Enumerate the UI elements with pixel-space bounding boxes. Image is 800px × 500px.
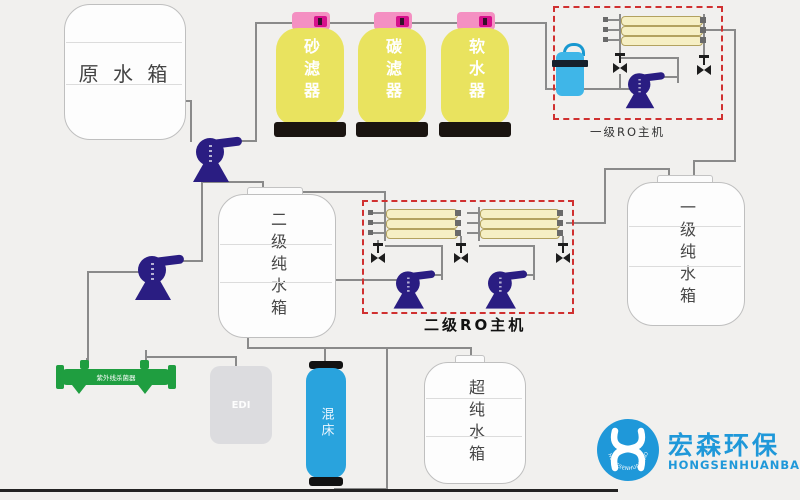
stage1-pure-water-tank-label: 一级纯水箱 <box>678 199 694 309</box>
valve-icon <box>613 62 627 74</box>
filter-valve-knob <box>314 16 327 27</box>
membrane-stub <box>608 29 619 31</box>
pipe-connector <box>700 27 706 33</box>
membrane-stub <box>373 232 384 234</box>
filter-valve-knob <box>396 16 409 27</box>
uv-leg <box>72 385 86 394</box>
pipe-connector <box>368 220 373 225</box>
mixed-bed-bottom-cap <box>309 477 343 486</box>
ro-stage2-label: 二级RO主机 <box>424 314 526 335</box>
uv-sterilizer: 紫外线杀菌器 <box>60 369 172 385</box>
pipe-connector <box>603 27 608 32</box>
filter-base <box>439 122 511 137</box>
pipe-segment <box>545 22 547 90</box>
tank-seam <box>426 436 522 437</box>
filter-base <box>356 122 428 137</box>
pipe-connector <box>557 210 563 216</box>
membrane-stub <box>608 39 619 41</box>
membrane-stub <box>467 212 478 214</box>
filter-valve-knob <box>479 16 492 27</box>
stage2-pure-water-tank-label: 二级纯水箱 <box>269 211 285 321</box>
tank-seam <box>629 226 741 227</box>
pipe-segment <box>190 100 192 142</box>
ro-membrane-tube <box>386 219 458 229</box>
pipe-connector <box>368 230 373 235</box>
pipe-segment <box>145 350 147 360</box>
ultra-pure-water-tank: 超纯水箱 <box>424 362 526 484</box>
membrane-stub <box>373 222 384 224</box>
membrane-stub <box>467 232 478 234</box>
pipe-connector <box>603 17 608 22</box>
valve-icon <box>697 64 711 76</box>
pipe-segment <box>88 271 142 273</box>
ro-membrane-tube <box>386 209 458 219</box>
membrane-stub <box>467 222 478 224</box>
ultra-pure-water-tank-label: 超纯水箱 <box>467 379 483 467</box>
transfer-pump <box>138 252 172 300</box>
tank-seam <box>66 42 182 43</box>
sand-filter-label: 砂滤器 <box>302 38 318 104</box>
precision-filter <box>556 52 584 96</box>
pipe-connector <box>557 230 563 236</box>
pipe-segment <box>694 160 736 162</box>
pipe-segment <box>201 181 203 262</box>
ro-membrane-tube <box>621 16 703 26</box>
carbon-filter-label: 碳滤器 <box>384 38 400 104</box>
pipe-connector <box>557 220 563 226</box>
uv-port <box>80 360 89 369</box>
tank-seam <box>629 266 741 267</box>
pipe-segment <box>145 356 236 358</box>
pipe-segment <box>386 347 388 490</box>
raw-water-tank: 原 水 箱 <box>64 4 186 140</box>
mixed-bed-label: 混床 <box>317 407 336 439</box>
tank-seam <box>426 398 522 399</box>
pipe-segment <box>247 347 472 349</box>
bottom-edge-line <box>0 489 618 492</box>
filter-base <box>274 122 346 137</box>
edi-label: EDI <box>232 400 251 411</box>
ro-membrane-tube <box>386 229 458 239</box>
precision-filter-band <box>552 60 588 67</box>
softener-label: 软水器 <box>467 38 483 104</box>
logo-chinese-text: 宏森环保 <box>668 426 780 462</box>
pipe-segment <box>604 168 670 170</box>
valve-icon <box>454 252 468 264</box>
ro-stage1-label: 一级RO主机 <box>590 124 665 140</box>
membrane-stub <box>373 212 384 214</box>
membrane-stub <box>608 19 619 21</box>
process-flow-diagram: 一级RO主机 二级RO主机 原 水 箱 二级纯水箱 <box>0 0 800 500</box>
uv-sterilizer-label: 紫外线杀菌器 <box>97 372 136 382</box>
high-pressure-pump <box>628 70 655 108</box>
ro-membrane-tube <box>621 36 703 46</box>
pipe-connector <box>368 210 373 215</box>
ro-stage2-pump <box>488 268 517 309</box>
uv-port <box>140 360 149 369</box>
pipe-connector <box>455 220 461 226</box>
raw-water-tank-label: 原 水 箱 <box>79 58 172 87</box>
mixed-bed-column: 混床 <box>306 368 346 478</box>
pipe-connector <box>455 210 461 216</box>
stage1-pure-water-tank: 一级纯水箱 <box>627 182 745 326</box>
raw-water-pump <box>196 134 230 182</box>
logo-mark-icon: HONGSENHUANBAO <box>597 419 659 481</box>
edi-module: EDI <box>210 366 272 444</box>
stage2-pure-water-tank: 二级纯水箱 <box>218 194 336 338</box>
logo-english-text: HONGSENHUANBAO <box>668 458 800 472</box>
company-logo: HONGSENHUANBAO <box>597 419 659 481</box>
tank-seam <box>220 244 332 245</box>
tank-seam <box>220 282 332 283</box>
ro-membrane-tube <box>480 209 560 219</box>
tank-seam <box>66 84 182 85</box>
uv-leg <box>138 385 152 394</box>
ro-stage2-pump <box>396 268 425 309</box>
valve-icon <box>371 252 385 264</box>
pipe-connector <box>603 37 608 42</box>
ro-membrane-tube <box>480 229 560 239</box>
valve-icon <box>556 252 570 264</box>
ro-membrane-tube <box>480 219 560 229</box>
pipe-connector <box>455 230 461 236</box>
pipe-segment <box>604 168 606 224</box>
pipe-connector <box>700 17 706 23</box>
pipe-segment <box>734 29 736 162</box>
pipe-segment <box>87 271 89 363</box>
ro-membrane-tube <box>621 26 703 36</box>
pipe-segment <box>255 22 257 142</box>
pipe-connector <box>700 37 706 43</box>
